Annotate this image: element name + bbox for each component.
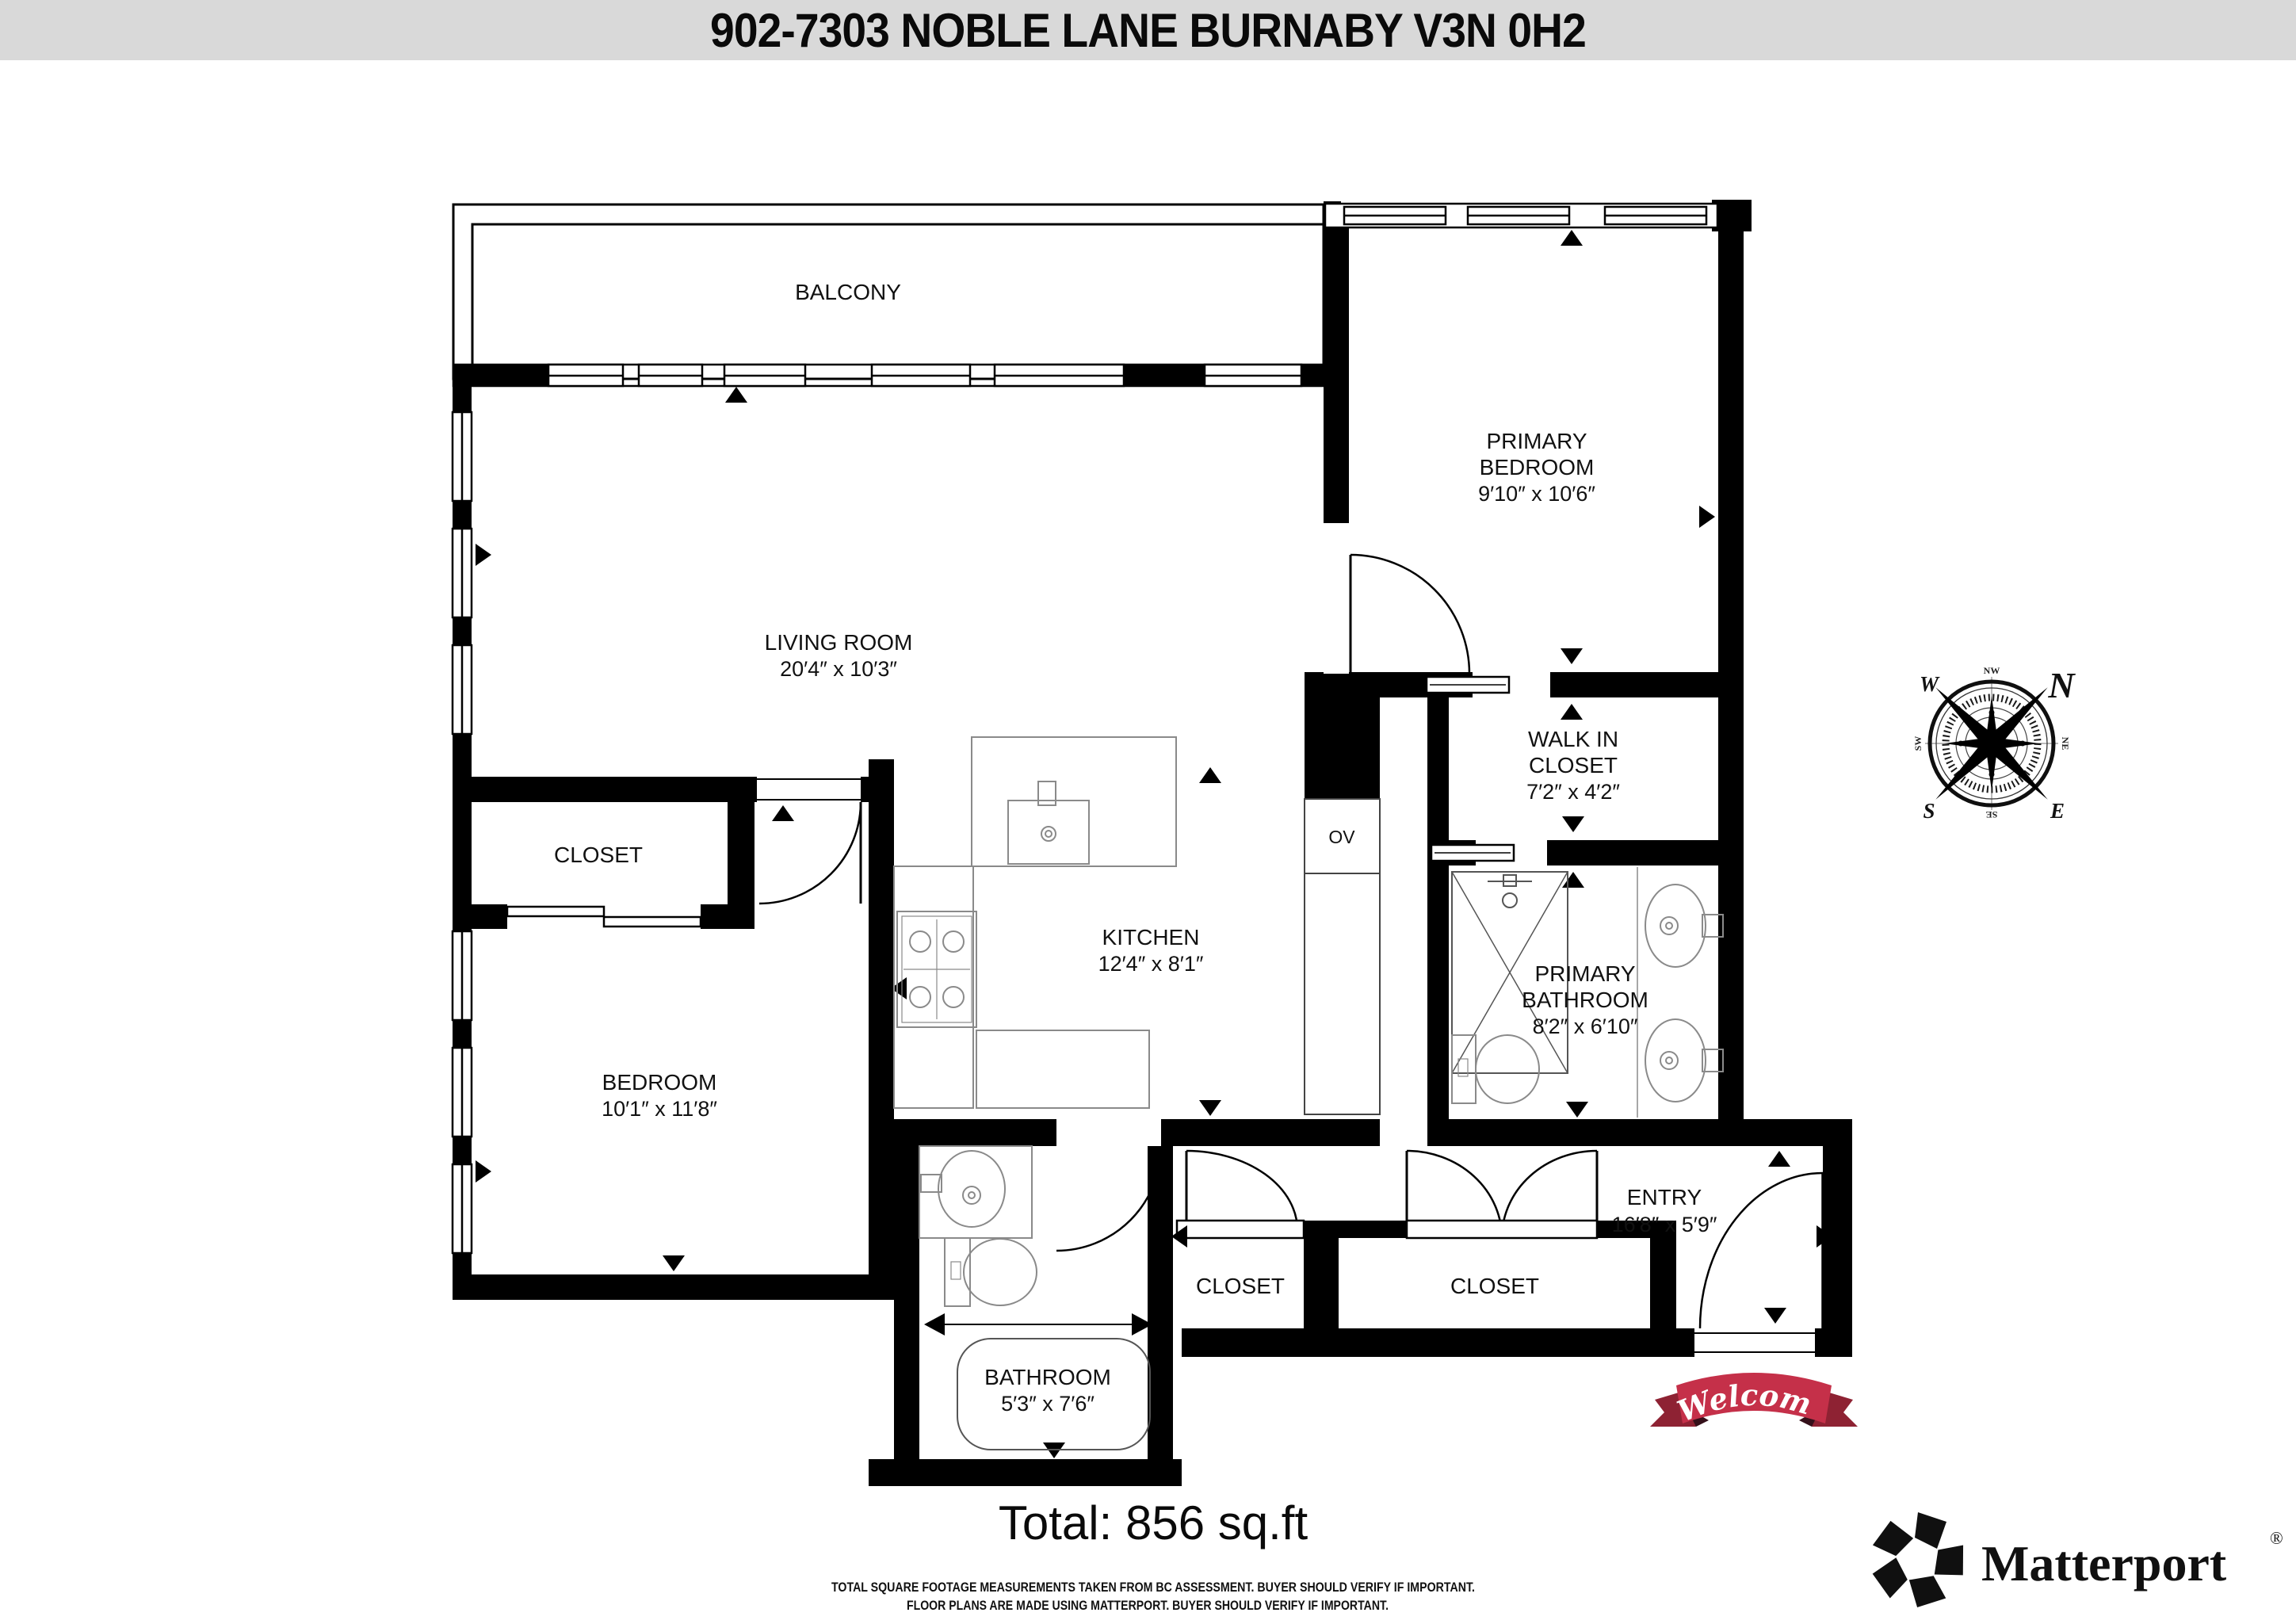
wall-segment (453, 617, 472, 645)
room-dims-living: 20′4″ x 10′3″ (780, 657, 897, 681)
compass-label-s: S (1923, 799, 1935, 823)
marker-up (1768, 1151, 1790, 1167)
room-label-entry: ENTRY (1627, 1185, 1702, 1209)
wall-segment (1301, 365, 1324, 386)
wall-segment (894, 1119, 919, 1459)
wall-segment (861, 777, 869, 802)
toilet-bowl (964, 1239, 1037, 1305)
wall-segment (869, 1459, 1182, 1486)
wall-segment (1339, 1221, 1407, 1238)
room-label-balcony: BALCONY (795, 280, 901, 304)
wall-segment (453, 1020, 472, 1048)
wall-segment (1124, 365, 1205, 386)
wall-segment (453, 1253, 472, 1300)
compass-label-se: SE (1986, 809, 1998, 820)
marker-up (1562, 872, 1584, 888)
room-label-entry-closet-large: CLOSET (1450, 1274, 1539, 1298)
kitchen-faucet (1038, 781, 1056, 805)
wall-segment (1304, 1221, 1339, 1330)
doorway-primary-bedroom (1324, 523, 1349, 674)
wall-segment (1823, 1119, 1852, 1333)
burner (943, 987, 964, 1007)
room-dims-bathroom: 5′3″ x 7′6″ (1001, 1392, 1095, 1416)
wall-segment (1547, 840, 1718, 865)
room-label-entry-closet-small: CLOSET (1196, 1274, 1285, 1298)
sink-drain (1660, 917, 1678, 934)
brand-registered-mark: ® (2270, 1528, 2283, 1548)
wall-segment (472, 904, 507, 929)
wall-segment (728, 802, 755, 904)
dim-arrow-left (924, 1313, 945, 1336)
sink-drain (1666, 1057, 1672, 1064)
wall-segment (1324, 204, 1349, 523)
wall-segment (1305, 672, 1380, 799)
room-label-primary-bath-1: PRIMARY (1534, 961, 1635, 986)
compass-ray-ne (1992, 737, 2039, 750)
logo-petal (1872, 1518, 1916, 1559)
wall-segment (453, 734, 472, 931)
compass-label-nw: NW (1984, 665, 2000, 676)
marker-up (1199, 767, 1221, 783)
wall-segment (1650, 1221, 1676, 1330)
total-area-label: Total: 856 sq.ft (999, 1496, 1308, 1549)
marker-up (1561, 230, 1583, 246)
kitchen-island (972, 737, 1176, 866)
room-label-bedroom-closet: CLOSET (554, 843, 643, 867)
wall-segment (453, 777, 757, 802)
closet-opening (1177, 1221, 1304, 1238)
marker-up (772, 805, 794, 821)
door-arc (1700, 1173, 1823, 1328)
compass-ray-sw (1944, 737, 1992, 750)
sink-basin (1645, 885, 1706, 967)
marker-right (1699, 506, 1715, 528)
floorplan-canvas: BALCONY LIVING ROOM 20′4″ x 10′3″ PRIMAR… (0, 0, 2296, 1624)
logo-petal (1867, 1552, 1914, 1600)
marker-down (1199, 1100, 1221, 1116)
bypass-door (604, 917, 701, 927)
door-arc (1186, 1151, 1297, 1230)
sink-drain (1666, 923, 1672, 929)
compass-star (1935, 687, 2047, 799)
door-arc (759, 802, 861, 904)
room-dims-kitchen: 12′4″ x 8′1″ (1098, 952, 1204, 976)
compass-label-w: W (1920, 672, 1940, 696)
sink-drain (968, 1192, 975, 1198)
burner (910, 987, 930, 1007)
stove (897, 911, 976, 1027)
kitchen-drain (1045, 831, 1052, 837)
sink-drain (963, 1186, 980, 1204)
compass-label-e: E (2050, 799, 2065, 823)
room-dims-entry: 16′8″ x 5′9″ (1612, 1213, 1717, 1236)
pantry-box (1305, 873, 1380, 1114)
toilet-bowl (1476, 1035, 1539, 1103)
door-arc (1056, 1146, 1161, 1251)
wall-segment (453, 1274, 894, 1300)
compass-ray-nw (1985, 696, 1998, 743)
shower-drain (1503, 893, 1517, 908)
toilet-tank (1452, 1035, 1476, 1103)
closet-opening (1407, 1221, 1597, 1238)
burner (943, 931, 964, 952)
sink-basin (1645, 1019, 1706, 1102)
floorplan-page: 902-7303 NOBLE LANE BURNABY V3N 0H2 (0, 0, 2296, 1624)
doorway-bathroom (1056, 1119, 1161, 1146)
room-label-wic-2: CLOSET (1529, 753, 1618, 778)
room-dims-primary-bedroom: 9′10″ x 10′6″ (1478, 482, 1595, 506)
room-dims-wic: 7′2″ x 4′2″ (1526, 780, 1620, 804)
wall-segment (1161, 1119, 1380, 1146)
wall-segment (1427, 1119, 1852, 1146)
logo-petal (1915, 1512, 1946, 1549)
compass-label-n: N (2047, 665, 2076, 705)
room-label-primary-bedroom-1: PRIMARY (1486, 429, 1587, 453)
wall-segment (1718, 204, 1744, 1119)
toilet-tank (945, 1238, 970, 1306)
doorway-bedroom (757, 777, 861, 802)
room-label-primary-bedroom-2: BEDROOM (1480, 455, 1595, 480)
room-label-wic-1: WALK IN (1528, 727, 1618, 751)
sink-drain (1660, 1052, 1678, 1069)
compass-label-sw: SW (1912, 736, 1924, 751)
wall-segment (1182, 1328, 1694, 1357)
wall-segment (1550, 672, 1744, 697)
wall-segment (701, 904, 755, 929)
marker-down (1764, 1308, 1786, 1324)
label-oven: OV (1328, 827, 1355, 847)
room-dims-bedroom: 10′1″ x 11′8″ (602, 1097, 717, 1121)
wall-segment (1427, 672, 1449, 1119)
matterport-logo: Matterport ® (1867, 1512, 2283, 1615)
room-label-bathroom: BATHROOM (984, 1365, 1111, 1389)
wall-segment (453, 1137, 472, 1164)
door-arc (1350, 555, 1469, 674)
sink-basin (938, 1151, 1005, 1227)
kitchen-counter-bottom (976, 1030, 1149, 1108)
room-label-living: LIVING ROOM (765, 630, 913, 655)
marker-down (663, 1255, 685, 1271)
room-dims-primary-bath: 8′2″ x 6′10″ (1533, 1015, 1638, 1038)
room-label-bedroom: BEDROOM (602, 1070, 717, 1095)
marker-right (476, 544, 491, 566)
compass-rose: N W S E NW NE SW SE (1912, 665, 2076, 823)
walls (453, 200, 1852, 1486)
compass-ray-se (1985, 743, 1998, 791)
toilet-button (951, 1262, 961, 1279)
kitchen-sink (1008, 801, 1089, 864)
room-label-kitchen: KITCHEN (1102, 925, 1200, 950)
disclaimer-line-2: FLOOR PLANS ARE MADE USING MATTERPORT. B… (907, 1598, 1389, 1613)
window-panes-primary-top (1325, 204, 1717, 227)
brand-name: Matterport (1981, 1535, 2227, 1592)
marker-up (1561, 704, 1583, 720)
burner (910, 931, 930, 952)
wall-segment (453, 365, 548, 386)
marker-up (725, 387, 747, 403)
disclaimer-line-1: TOTAL SQUARE FOOTAGE MEASUREMENTS TAKEN … (831, 1580, 1475, 1595)
marker-down (1561, 648, 1583, 664)
bypass-door (507, 907, 604, 916)
wall-segment (453, 501, 472, 529)
marker-right (476, 1160, 491, 1183)
footer: Total: 856 sq.ft TOTAL SQUARE FOOTAGE ME… (831, 1496, 1475, 1613)
compass-label-ne: NE (2060, 737, 2071, 751)
matterport-icon (1867, 1512, 1973, 1615)
marker-down (1562, 816, 1584, 832)
marker-down (1566, 1102, 1588, 1118)
wall-segment (869, 759, 894, 1300)
kitchen-drain (1041, 827, 1056, 841)
room-label-primary-bath-2: BATHROOM (1522, 988, 1648, 1012)
